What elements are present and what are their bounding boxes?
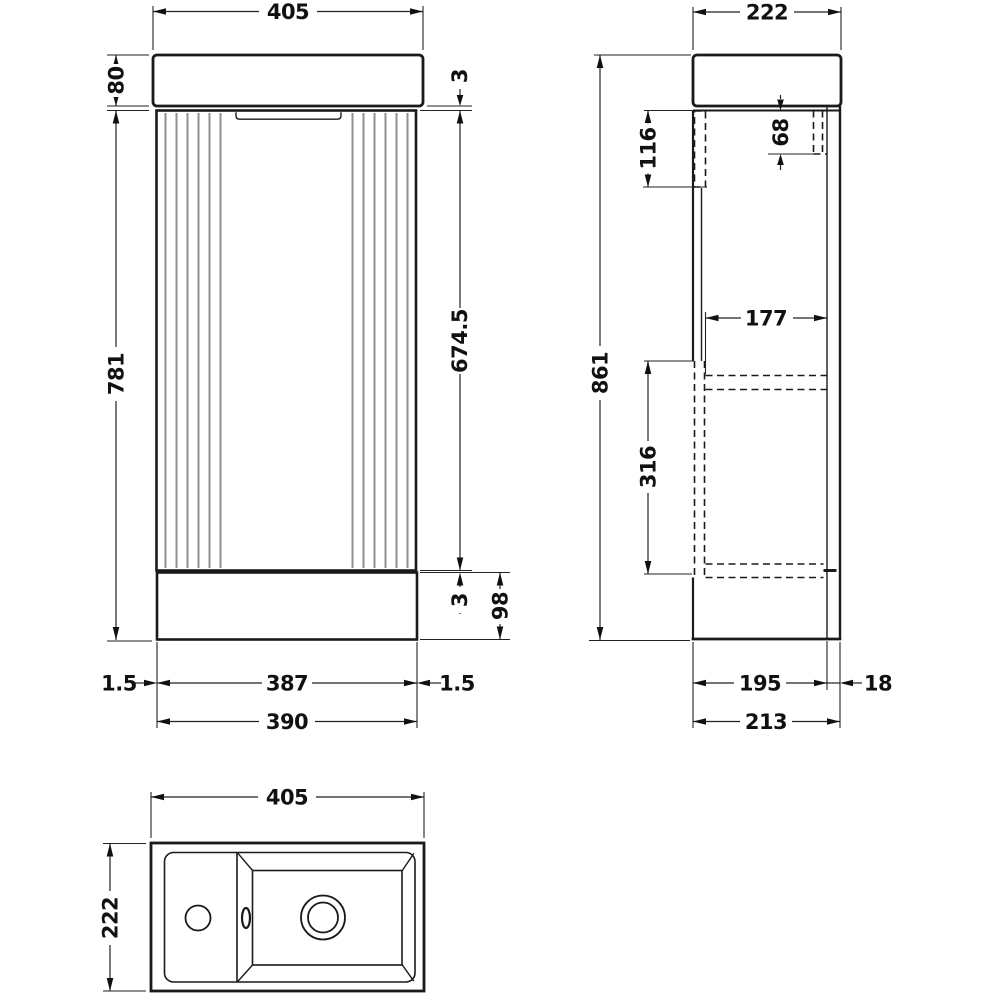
plinth	[157, 573, 417, 640]
svg-text:316: 316	[637, 446, 661, 488]
svg-text:80: 80	[105, 66, 129, 94]
wall-bracket-hidden	[814, 111, 828, 155]
basin-front	[153, 55, 423, 106]
svg-text:3: 3	[448, 593, 472, 607]
shelf-hidden	[706, 376, 828, 390]
dim-side-shelf-depth: 177	[706, 307, 828, 375]
dim-front-bottom-widths: 1.5 387 1.5 390	[101, 642, 475, 734]
svg-text:68: 68	[769, 118, 793, 146]
dim-side-internal-depth: 195	[739, 672, 781, 696]
dim-front-cabinet-height: 781	[103, 111, 152, 642]
dim-side-basin-depth: 222	[693, 1, 841, 51]
basin-plan-outline	[151, 843, 424, 991]
svg-text:98: 98	[489, 592, 513, 620]
svg-text:177: 177	[745, 307, 787, 331]
basin-side	[693, 55, 841, 106]
dim-side-bottom-depths: 195 18 213	[693, 641, 892, 734]
dim-side-lower-height: 316	[635, 361, 694, 574]
svg-text:405: 405	[266, 786, 308, 810]
dim-front-overall-width: 405	[153, 0, 423, 50]
svg-text:222: 222	[746, 1, 788, 25]
svg-text:222: 222	[99, 897, 123, 939]
dim-front-top-gap: 3	[420, 63, 472, 111]
svg-text:781: 781	[105, 353, 129, 395]
svg-text:116: 116	[637, 127, 661, 169]
dim-front-cabinet-width: 390	[266, 710, 308, 734]
dim-plan-depth: 222	[97, 844, 146, 992]
side-view: 222 116 68	[587, 1, 892, 735]
dim-front-inset-right: 1.5	[439, 672, 475, 696]
vanity-drawing: 405 80 781 3	[0, 0, 1000, 1000]
dim-front-basin-height: 80	[103, 55, 149, 106]
svg-text:861: 861	[589, 352, 613, 394]
svg-text:405: 405	[267, 0, 309, 24]
hinge-plate-hidden	[695, 111, 706, 187]
svg-text:3: 3	[448, 69, 472, 83]
dim-front-inset-left: 1.5	[101, 672, 137, 696]
plan-view: 405 222	[97, 786, 424, 992]
svg-text:674.5: 674.5	[448, 309, 472, 373]
dim-side-hinge-height: 116	[635, 111, 707, 188]
dim-side-back-thickness: 18	[864, 672, 892, 696]
dim-plan-width: 405	[151, 786, 424, 839]
dim-side-cabinet-depth: 213	[745, 710, 787, 734]
dim-front-door-height: 674.5	[420, 111, 472, 571]
front-view: 405 80 781 3	[101, 0, 512, 734]
technical-drawing-canvas: 405 80 781 3	[0, 0, 1000, 1000]
door-panel	[157, 111, 417, 571]
bottom-board-hidden	[706, 564, 837, 578]
dim-front-door-width: 387	[266, 672, 308, 696]
